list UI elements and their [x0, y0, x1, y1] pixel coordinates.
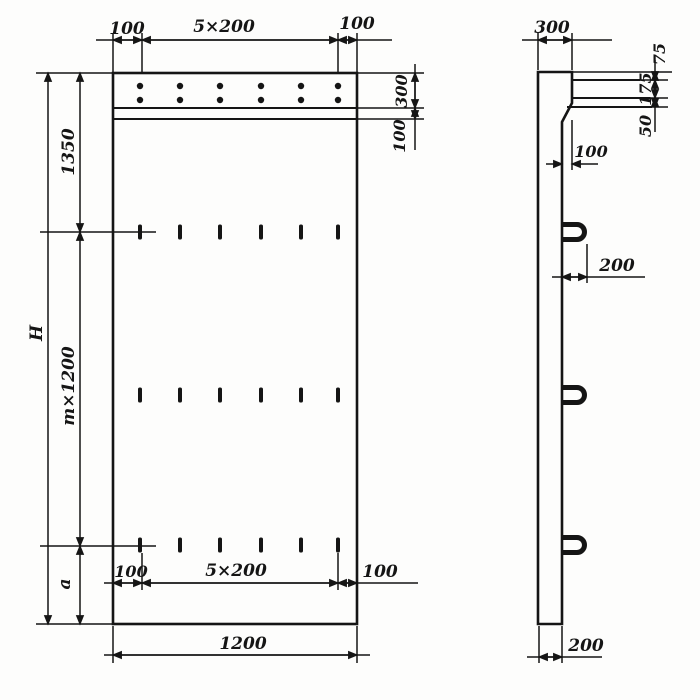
blueprint-sheet: 100 5×200 100 300 100 1350 H m×1200 a 10… [0, 0, 700, 700]
dim-top-span-label: 5×200 [193, 17, 255, 37]
lifting-slots [138, 225, 340, 553]
dim-module-label: m×1200 [59, 346, 79, 426]
dim-ledge-75-label: 75 [650, 43, 669, 65]
dim-a-label: a [55, 578, 75, 589]
dim-bottom-left-label: 100 [114, 562, 147, 581]
dim-ledge-175-label: 175 [636, 72, 655, 105]
side-dimension-labels: 300 75 175 50 100 200 200 [534, 18, 669, 656]
technical-drawing: 100 5×200 100 300 100 1350 H m×1200 a 10… [0, 0, 700, 700]
dim-top-right-label: 100 [339, 14, 375, 34]
side-view: 300 75 175 50 100 200 200 [522, 18, 672, 663]
dim-thickness-label: 200 [567, 636, 604, 656]
dim-band-height-label: 300 [392, 74, 411, 107]
dim-width-label: 1200 [219, 634, 266, 654]
dim-H-label: H [27, 324, 47, 342]
dim-band-gap-label: 100 [390, 119, 409, 152]
anchor-dots [137, 83, 341, 103]
dim-1350-label: 1350 [59, 128, 79, 175]
dim-top-left-label: 100 [109, 19, 145, 39]
dim-step-label: 100 [574, 142, 607, 161]
dim-side-width-label: 300 [534, 18, 570, 38]
side-loops [562, 225, 585, 553]
dim-bottom-right-label: 100 [362, 562, 398, 582]
dim-loop-offset-label: 200 [598, 256, 635, 276]
front-view: 100 5×200 100 300 100 1350 H m×1200 a 10… [27, 14, 424, 663]
front-panel-outline [113, 73, 357, 624]
dim-bottom-span-label: 5×200 [205, 561, 267, 581]
front-dimension-labels: 100 5×200 100 300 100 1350 H m×1200 a 10… [27, 14, 411, 654]
dim-ledge-50-label: 50 [636, 115, 655, 137]
